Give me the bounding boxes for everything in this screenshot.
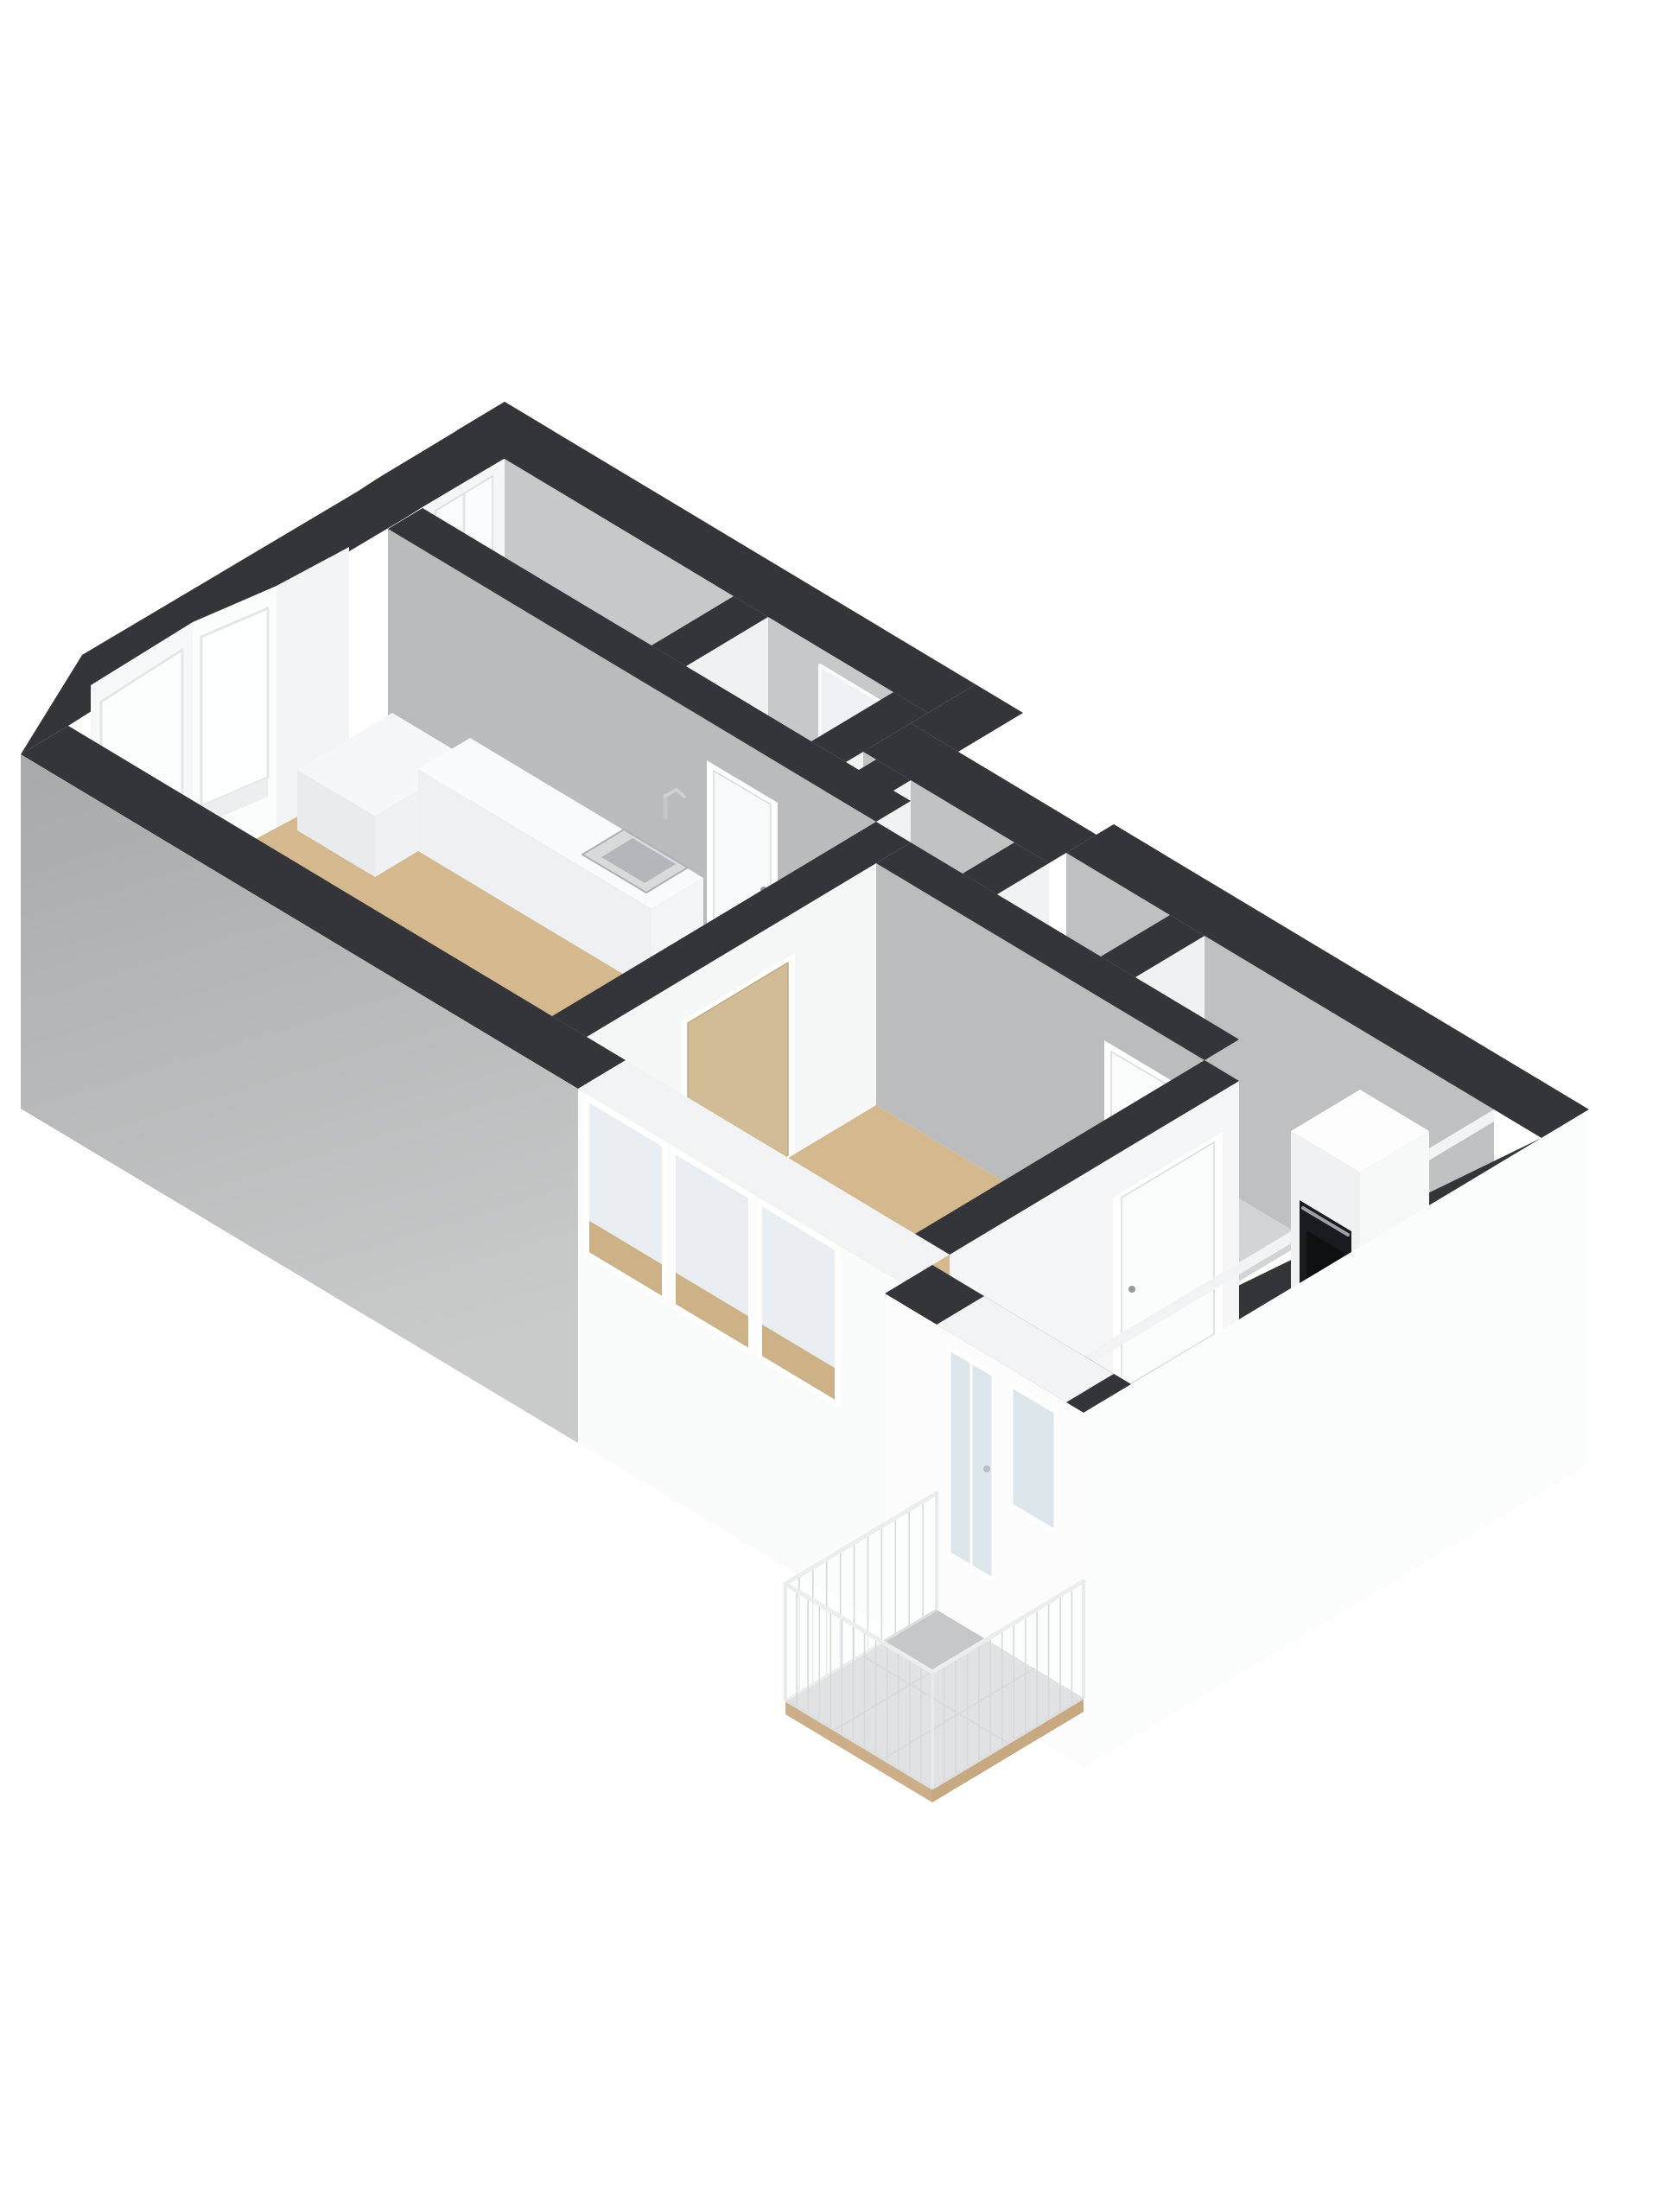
floorplan-3d-render [0,0,1659,2212]
bay-window-nw-glass [201,608,268,806]
balcony-door-handle [983,1465,990,1472]
kitchen-door-handle [1128,1286,1135,1293]
floorplan-page [0,0,1659,2212]
balcony-window-glass [1011,1385,1056,1532]
shapes-layer [21,402,1589,1802]
